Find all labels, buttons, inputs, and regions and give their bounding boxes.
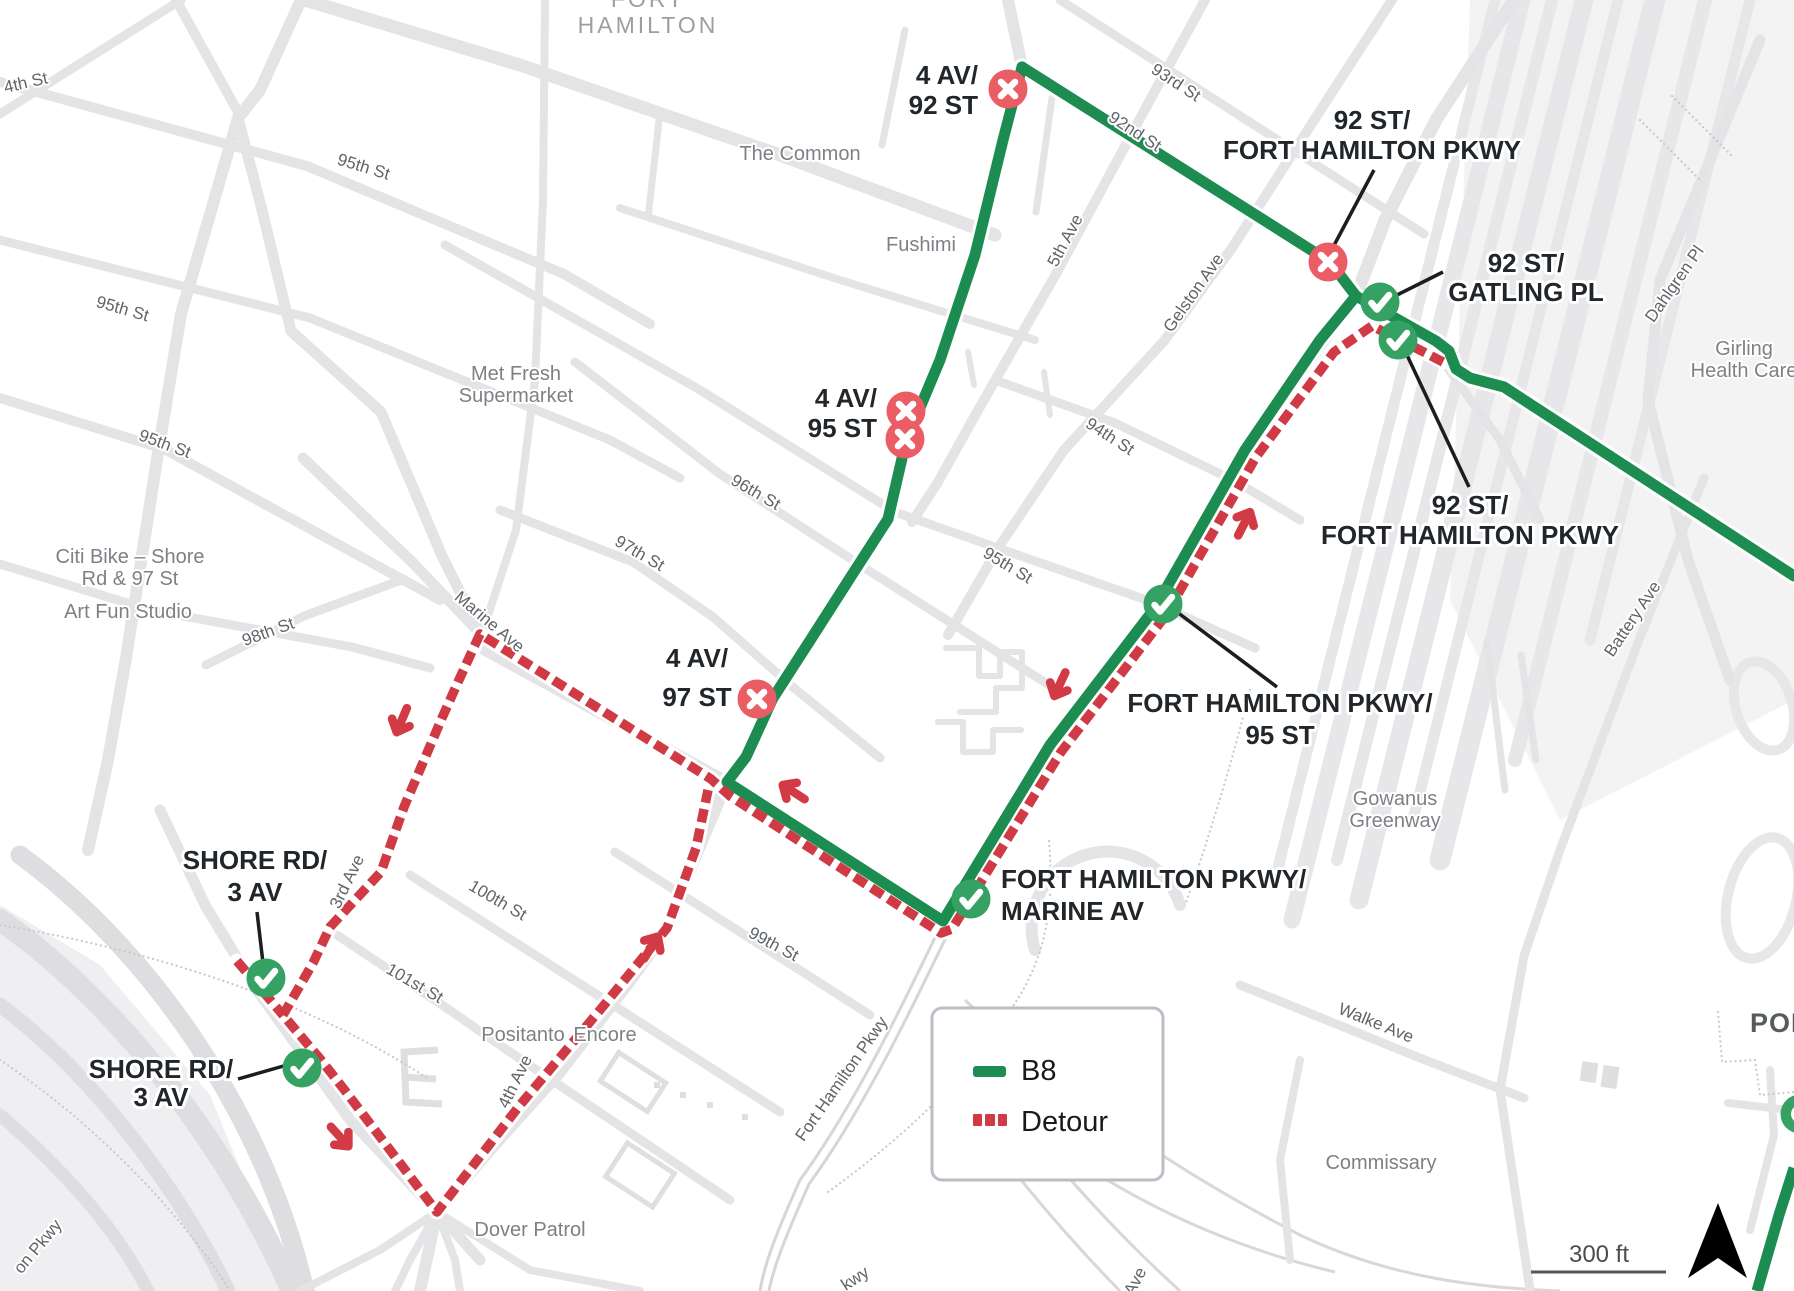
svg-text:POLI: POLI [1750,1008,1794,1038]
svg-text:Supermarket: Supermarket [459,385,574,407]
svg-text:SHORE RD/: SHORE RD/ [89,1054,233,1084]
svg-text:GATLING PL: GATLING PL [1448,277,1604,307]
svg-text:HAMILTON: HAMILTON [578,12,719,38]
svg-text:Dover Patrol: Dover Patrol [474,1219,585,1241]
svg-text:300 ft: 300 ft [1569,1241,1629,1268]
svg-text:Positanto: Positanto [481,1024,564,1046]
svg-text:Detour: Detour [1021,1106,1108,1138]
svg-text:Girling: Girling [1715,338,1773,360]
svg-text:FORT: FORT [611,0,685,12]
svg-text:FORT HAMILTON PKWY: FORT HAMILTON PKWY [1321,520,1619,550]
svg-text:95 ST: 95 ST [808,413,877,443]
svg-text:4 AV/: 4 AV/ [916,60,978,90]
svg-text:92 ST/: 92 ST/ [1488,248,1565,278]
svg-text:FORT HAMILTON PKWY/: FORT HAMILTON PKWY/ [1001,864,1306,894]
svg-text:92 ST/: 92 ST/ [1334,105,1411,135]
svg-text:Rd & 97 St: Rd & 97 St [82,568,179,590]
svg-text:SHORE RD/: SHORE RD/ [183,845,327,875]
svg-text:92 ST: 92 ST [909,90,978,120]
svg-text:FORT HAMILTON PKWY/: FORT HAMILTON PKWY/ [1127,688,1432,718]
svg-text:95 ST: 95 ST [1245,720,1314,750]
svg-text:4 AV/: 4 AV/ [666,643,728,673]
svg-text:Citi Bike – Shore: Citi Bike – Shore [56,546,205,568]
svg-text:3 AV: 3 AV [134,1082,190,1112]
svg-text:MARINE AV: MARINE AV [1001,896,1145,926]
svg-text:Fushimi: Fushimi [886,234,956,256]
svg-text:3 AV: 3 AV [228,877,284,907]
svg-text:The Common: The Common [739,143,860,165]
svg-text:Greenway: Greenway [1349,810,1440,832]
svg-text:Encore: Encore [573,1024,636,1046]
svg-text:Met Fresh: Met Fresh [471,363,561,385]
svg-text:Commissary: Commissary [1325,1152,1436,1174]
svg-text:4 AV/: 4 AV/ [815,383,877,413]
svg-text:Art Fun Studio: Art Fun Studio [64,601,192,623]
svg-text:Gowanus: Gowanus [1353,788,1438,810]
svg-text:97 ST: 97 ST [662,682,731,712]
svg-text:B8: B8 [1021,1055,1056,1087]
svg-text:92 ST/: 92 ST/ [1432,490,1509,520]
svg-text:FORT HAMILTON PKWY: FORT HAMILTON PKWY [1223,135,1521,165]
svg-text:Health Care: Health Care [1691,360,1794,382]
